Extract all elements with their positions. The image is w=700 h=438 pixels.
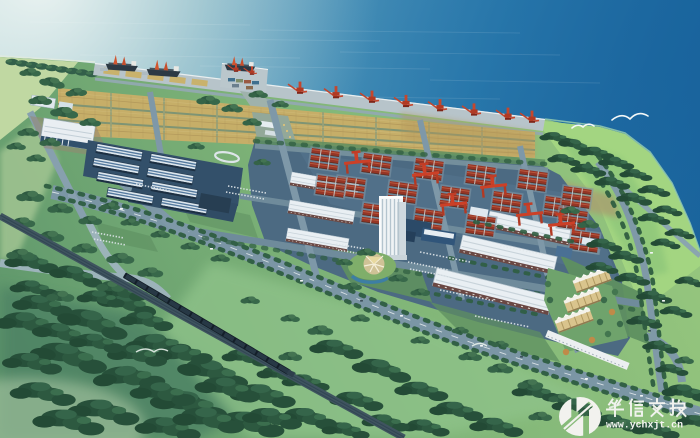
svg-text:www.ychxjt.cn: www.ychxjt.cn [606, 420, 683, 431]
